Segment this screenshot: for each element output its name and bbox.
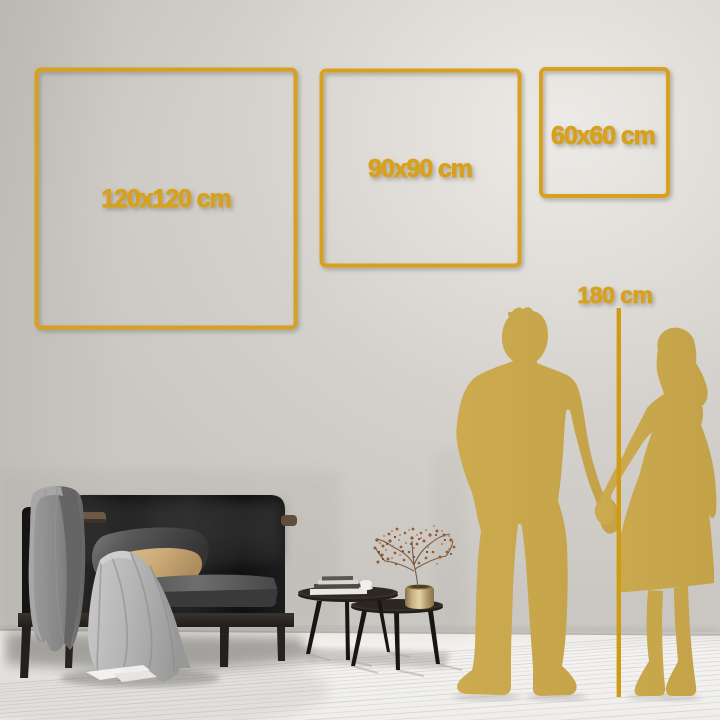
svg-text:90x90 cm: 90x90 cm — [368, 156, 472, 183]
svg-text:180 cm: 180 cm — [577, 282, 652, 308]
svg-text:120x120 cm: 120x120 cm — [101, 186, 230, 213]
svg-text:60x60 cm: 60x60 cm — [551, 123, 655, 150]
